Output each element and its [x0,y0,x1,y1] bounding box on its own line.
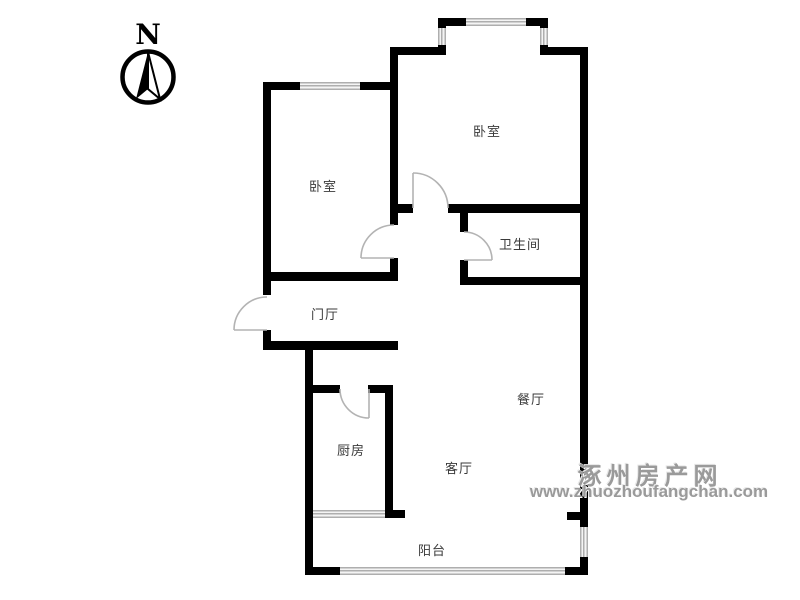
room-label-kitchen: 厨房 [311,440,391,459]
compass-needle-right [148,52,160,99]
room-label-bedroom-left: 卧室 [283,176,363,195]
room-label-living: 客厅 [419,458,499,477]
compass-icon [119,48,177,106]
room-label-bathroom: 卫生间 [480,234,560,253]
room-label-bedroom-top: 卧室 [447,121,527,140]
room-label-balcony: 阳台 [392,540,472,559]
door-kitchen [340,389,369,418]
door-entrance [234,297,267,330]
room-label-entry-hall: 门厅 [285,304,365,323]
door-bedroom-left [361,225,394,258]
room-label-dining: 餐厅 [491,389,571,408]
compass-needle-left [136,52,148,99]
watermark-site-url: www.zhuozhoufangchan.com [518,482,780,502]
compass-north-label: N [131,18,165,51]
door-bedroom-top [413,173,448,208]
floorplan-canvas: N [0,0,800,600]
